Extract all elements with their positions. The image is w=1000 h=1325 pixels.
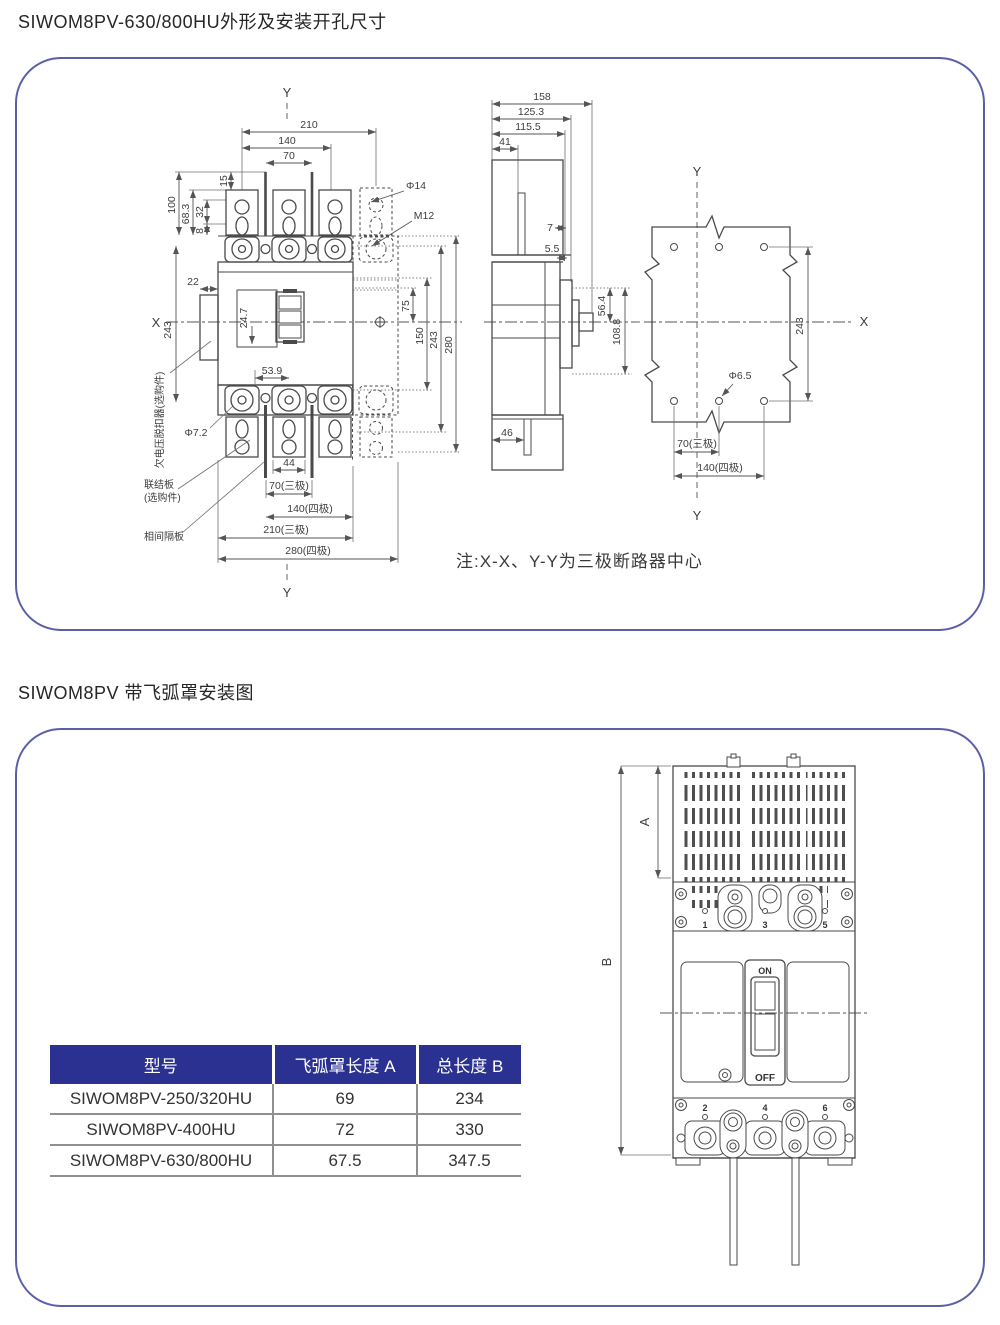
model-cell: SIWOM8PV-630/800HU	[50, 1145, 273, 1176]
spec-table: 型号 飞弧罩长度 A 总长度 B SIWOM8PV-250/320HU 69 2…	[50, 1045, 521, 1177]
section2-title: SIWOM8PV 带飞弧罩安装图	[18, 679, 254, 705]
section1-title: SIWOM8PV-630/800HU外形及安装开孔尺寸	[18, 8, 387, 34]
model-cell: SIWOM8PV-400HU	[50, 1114, 273, 1145]
table-row: SIWOM8PV-250/320HU 69 234	[50, 1084, 521, 1114]
center-note: 注:X-X、Y-Y为三极断路器中心	[456, 547, 703, 572]
length-a-cell: 69	[273, 1084, 417, 1114]
model-cell: SIWOM8PV-250/320HU	[50, 1084, 273, 1114]
catalog-page: SIWOM8PV-630/800HU外形及安装开孔尺寸 SIWOM8PV 带飞弧…	[0, 0, 1000, 1325]
length-b-cell: 347.5	[417, 1145, 521, 1176]
spec-table-header-row: 型号 飞弧罩长度 A 总长度 B	[50, 1045, 521, 1084]
length-b-cell: 234	[417, 1084, 521, 1114]
table-row: SIWOM8PV-400HU 72 330	[50, 1114, 521, 1145]
col-arc-chute-length-a: 飞弧罩长度 A	[273, 1045, 417, 1084]
col-total-length-b: 总长度 B	[417, 1045, 521, 1084]
length-a-cell: 67.5	[273, 1145, 417, 1176]
length-b-cell: 330	[417, 1114, 521, 1145]
length-a-cell: 72	[273, 1114, 417, 1145]
col-model: 型号	[50, 1045, 273, 1084]
arc-chute-panel	[15, 728, 985, 1307]
outline-dimensions-panel	[15, 57, 985, 631]
table-row: SIWOM8PV-630/800HU 67.5 347.5	[50, 1145, 521, 1176]
